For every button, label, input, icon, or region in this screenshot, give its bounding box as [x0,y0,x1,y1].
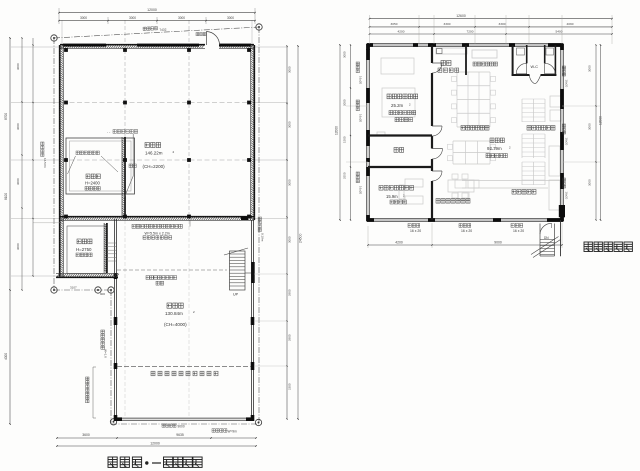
svg-text:12000: 12000 [599,116,603,125]
svg-text:9635: 9635 [176,433,184,437]
svg-text:3000: 3000 [16,123,20,130]
svg-text:4200: 4200 [395,241,403,245]
svg-text:7200: 7200 [467,29,474,33]
svg-text:3000: 3000 [16,243,20,250]
svg-text:3000: 3000 [129,16,136,20]
svg-text:H=2400: H=2400 [85,181,100,186]
svg-text:3000: 3000 [288,121,292,128]
svg-text:130.84m: 130.84m [165,311,183,316]
svg-text:3600: 3600 [82,433,90,437]
svg-text:W-C: W-C [531,65,539,69]
svg-text:- -: - - [107,130,110,134]
svg-text:16x20: 16x20 [359,76,363,85]
svg-text:3000: 3000 [16,178,20,185]
svg-text:146.22m: 146.22m [145,151,163,156]
svg-text:12600: 12600 [456,14,466,18]
svg-text:2900: 2900 [288,334,292,341]
svg-text:16 x 20: 16 x 20 [461,229,472,233]
svg-text:DN: DN [544,236,549,240]
svg-text:25.2m: 25.2m [391,103,404,108]
svg-text:3300: 3300 [444,22,451,26]
svg-text:16.57m: 16.57m [43,158,47,169]
svg-text:H=2750: H=2750 [76,247,92,252]
svg-text:12000: 12000 [147,8,157,12]
svg-text:3000: 3000 [80,16,87,20]
svg-text:9000: 9000 [494,241,502,245]
svg-text:3000: 3000 [588,65,592,72]
svg-text:(CH=4000): (CH=4000) [164,322,187,327]
svg-text:(CH=2200): (CH=2200) [143,164,166,169]
svg-text:3000: 3000 [343,51,347,58]
svg-text:16x20: 16x20 [565,80,569,88]
svg-text:7432: 7432 [159,28,167,32]
svg-text:92.79m: 92.79m [487,146,502,151]
svg-text:W=1.8: W=1.8 [104,349,108,358]
svg-text:1500: 1500 [343,136,347,143]
svg-text:16 x 20: 16 x 20 [410,229,421,233]
svg-text:16x20: 16x20 [359,186,363,195]
svg-text:3000: 3000 [588,179,592,186]
svg-text:3000: 3000 [227,16,234,20]
svg-text:3107: 3107 [70,286,77,290]
svg-text:900: 900 [100,292,105,296]
svg-text:3300: 3300 [499,22,506,26]
svg-text:12000: 12000 [150,441,160,445]
svg-text:16 x 20: 16 x 20 [513,229,524,233]
svg-text:2900: 2900 [288,289,292,296]
svg-text:3000: 3000 [288,66,292,73]
svg-text:3050: 3050 [391,22,398,26]
svg-text:16x20: 16x20 [565,192,569,200]
svg-text:8100: 8100 [4,193,8,200]
svg-text:4200: 4200 [398,29,405,33]
svg-text:5400: 5400 [556,29,563,33]
svg-text:16x20: 16x20 [565,138,569,146]
svg-text:2000: 2000 [343,99,347,106]
svg-text:3000: 3000 [288,236,292,243]
svg-text:W=5.5m x 2.2m: W=5.5m x 2.2m [145,232,170,236]
svg-text:2200: 2200 [288,383,292,390]
svg-text:3000: 3000 [16,63,20,70]
svg-text:3000: 3000 [288,179,292,186]
svg-text:2550: 2550 [343,172,347,179]
svg-text:15.9m: 15.9m [386,194,398,199]
svg-text:W=9m: W=9m [228,429,238,433]
svg-text:UP: UP [233,293,239,297]
svg-text:4000: 4000 [4,353,8,360]
svg-text:9.19m: 9.19m [261,233,265,242]
svg-text:8700: 8700 [4,113,8,120]
svg-text:12000: 12000 [335,126,339,135]
svg-text:9000: 9000 [178,424,185,428]
svg-text:3000: 3000 [178,16,185,20]
svg-text:24500: 24500 [299,233,303,243]
svg-text:16x20: 16x20 [359,114,363,123]
svg-text:4090: 4090 [567,22,574,26]
svg-text:3000: 3000 [588,123,592,130]
